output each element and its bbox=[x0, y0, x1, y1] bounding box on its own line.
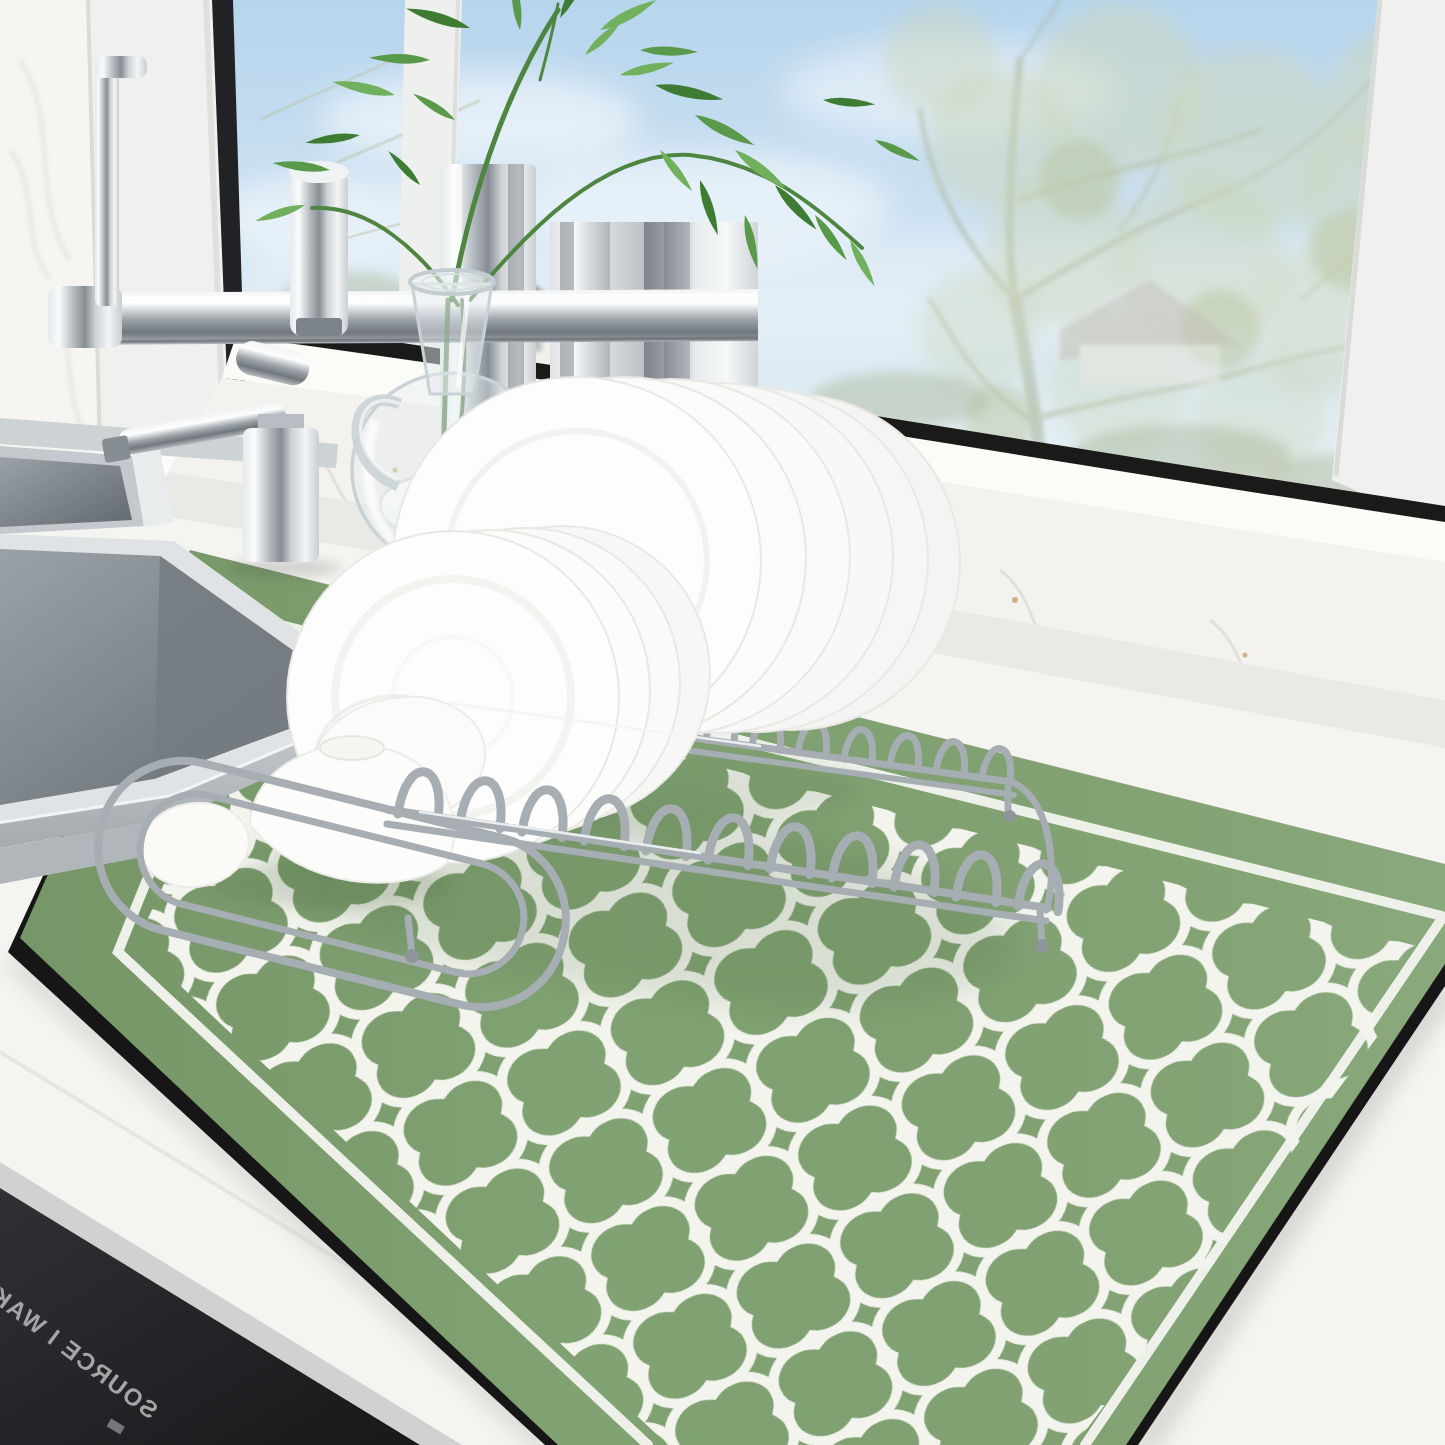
spray-head-nozzle bbox=[296, 318, 342, 336]
marble-wall bbox=[0, 0, 100, 472]
dispenser-body bbox=[243, 428, 319, 562]
rack-foot bbox=[1035, 939, 1049, 953]
spout-pipe-bend bbox=[95, 56, 147, 78]
marble-wall-face bbox=[0, 0, 98, 472]
rack-foot bbox=[1004, 810, 1016, 822]
faucet-spout-pipe bbox=[95, 56, 119, 306]
bowl-foot-ring bbox=[320, 736, 384, 760]
sink-small-basin bbox=[0, 457, 132, 527]
scene-stage: SOURCE I WAKE bbox=[0, 0, 1445, 1445]
rack-foot bbox=[405, 949, 419, 963]
pump-nozzle bbox=[101, 435, 131, 463]
rack-leg bbox=[408, 918, 412, 954]
kitchen-product-photo: SOURCE I WAKE bbox=[0, 0, 1445, 1445]
faucet-spray-head bbox=[290, 170, 348, 336]
